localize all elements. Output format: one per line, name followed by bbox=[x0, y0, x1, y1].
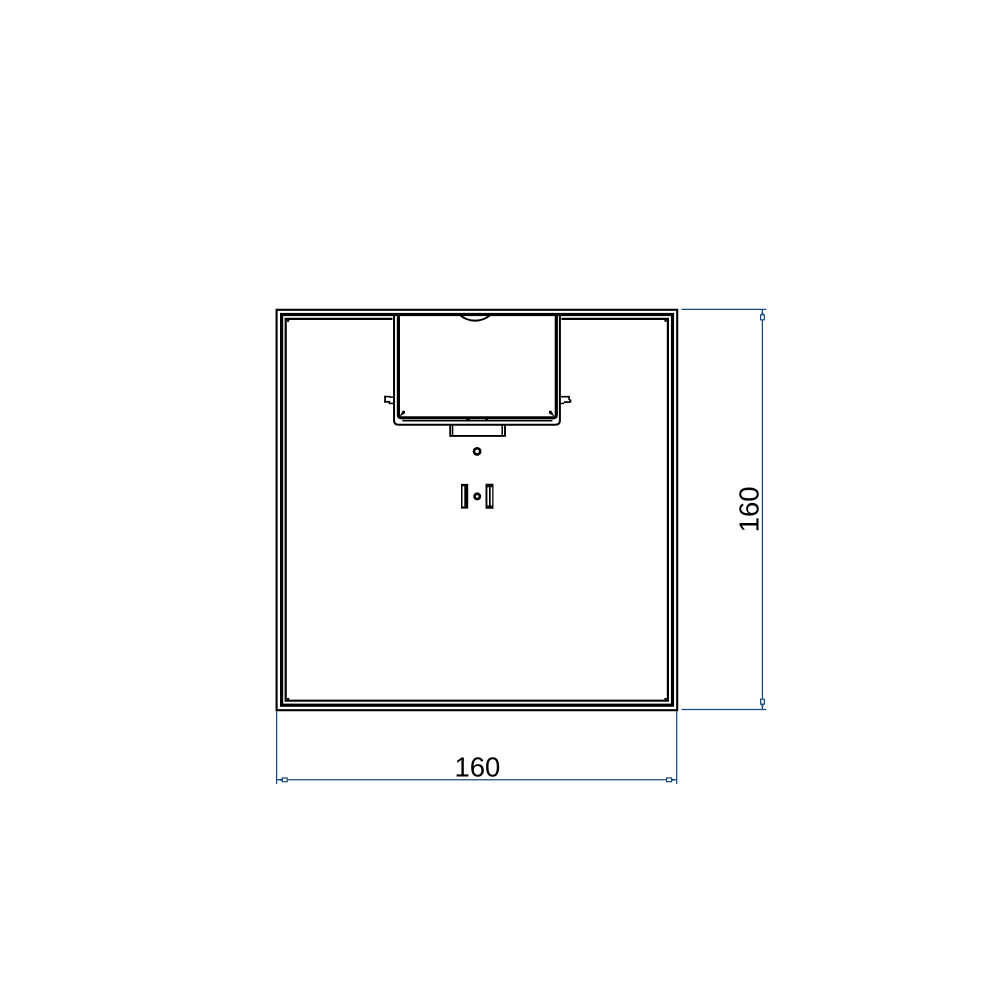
svg-text:160: 160 bbox=[454, 751, 500, 782]
svg-text:160: 160 bbox=[733, 486, 764, 532]
